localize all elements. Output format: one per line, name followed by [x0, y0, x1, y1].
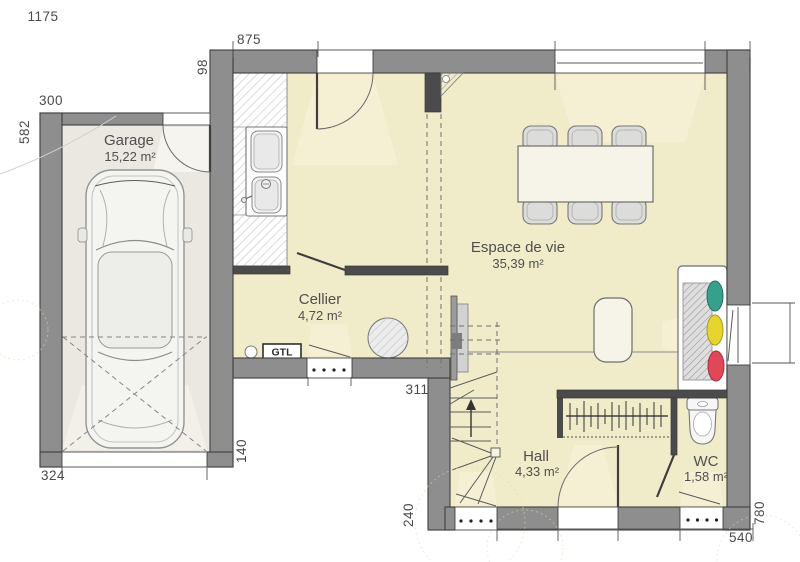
- dim-324: 324: [41, 468, 65, 483]
- floor-plan-canvas: GTL: [0, 0, 800, 562]
- dim-311: 311: [405, 382, 428, 397]
- sofa-cushion-yellow: [707, 315, 723, 345]
- cellier-area: 4,72 m²: [298, 308, 343, 323]
- garage-label: Garage: [104, 132, 154, 149]
- dim-875: 875: [237, 32, 261, 47]
- dining-set: [518, 126, 653, 224]
- dim-582: 582: [17, 120, 32, 144]
- dim-1175: 1175: [27, 9, 58, 24]
- sofa-cushion-teal: [707, 281, 723, 311]
- dim-140: 140: [234, 439, 249, 463]
- wc-area: 1,58 m²: [684, 469, 729, 484]
- dim-98: 98: [195, 59, 210, 75]
- kitchen-entry-door: [317, 50, 373, 73]
- kitchen-sink: [241, 127, 287, 216]
- garage-main-door: [62, 452, 207, 467]
- floor-plan-svg: GTL: [0, 0, 800, 562]
- sofa-cushion-red: [708, 351, 724, 381]
- gtl-box: GTL: [245, 344, 301, 359]
- stair-newel: [491, 448, 500, 457]
- toilet: [687, 398, 718, 444]
- dining-table: [518, 146, 653, 202]
- living-label: Espace de vie: [471, 239, 565, 256]
- garage-service-door: [163, 113, 210, 125]
- cellier-label: Cellier: [299, 291, 342, 308]
- sofa: [678, 266, 727, 392]
- water-heater: [368, 318, 408, 358]
- wc-top-wall: [557, 390, 727, 398]
- coffee-table: [594, 298, 632, 362]
- garage-area: 15,22 m²: [104, 149, 156, 164]
- wc-label: WC: [694, 453, 719, 470]
- hall-area: 4,33 m²: [515, 464, 560, 479]
- living-area: 35,39 m²: [492, 256, 544, 271]
- window-hall: [455, 507, 497, 530]
- entry-door: [558, 507, 618, 530]
- dim-540: 540: [729, 530, 753, 545]
- gtl-label: GTL: [272, 347, 294, 359]
- dim-780: 780: [752, 501, 767, 525]
- tv-unit: [451, 296, 468, 380]
- car-mirror-right: [183, 228, 192, 242]
- dim-240: 240: [401, 503, 416, 527]
- hall-label: Hall: [523, 448, 549, 465]
- car: [78, 170, 192, 448]
- car-mirror-left: [78, 228, 87, 242]
- window-top: [555, 50, 705, 73]
- wc-partition: [671, 398, 677, 455]
- dim-300: 300: [39, 93, 63, 108]
- window-cellier: [307, 358, 352, 378]
- pillar: [425, 73, 441, 112]
- gtl-outlet-icon: [245, 346, 257, 358]
